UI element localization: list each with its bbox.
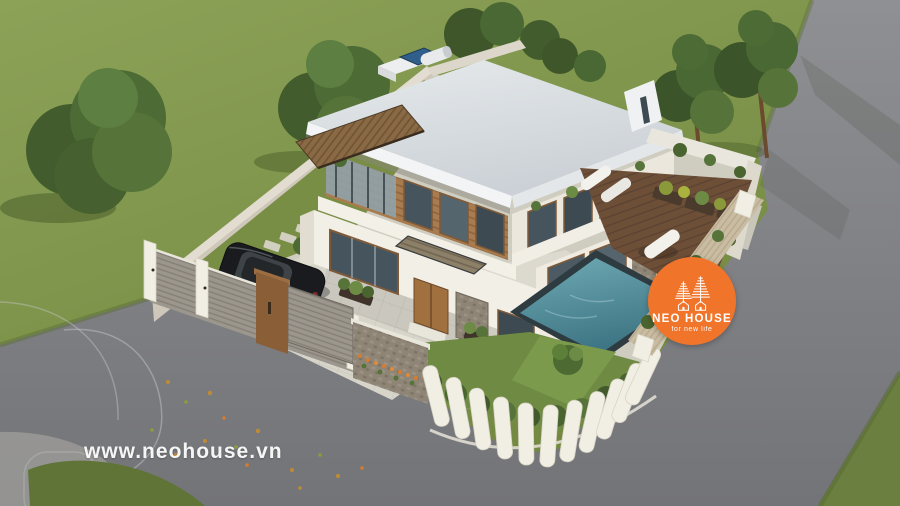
twin-trees-houses-icon [669,271,715,311]
post-fixture [152,269,155,272]
render-canvas: NEO HOUSE for new life www.neohouse.vn [0,0,900,506]
fence-post [144,240,156,302]
logo-name: NEO HOUSE [652,313,732,326]
wall-plant [734,166,746,178]
villa-render-scene [0,0,900,506]
wall-plant [704,154,716,166]
wall-plant [673,143,687,157]
website-watermark: www.neohouse.vn [84,440,283,464]
round-bush-highlight [569,347,583,361]
logo-tagline: for new life [671,326,712,333]
neohouse-logo-badge: NEO HOUSE for new life [648,257,736,345]
post-fixture [204,287,207,290]
gate-handle-slot [268,302,271,314]
wooden-gate-pillar [256,272,288,354]
fence-plant [712,230,724,242]
round-bush-highlight [552,344,568,360]
ground-left-end-wall [300,210,314,270]
